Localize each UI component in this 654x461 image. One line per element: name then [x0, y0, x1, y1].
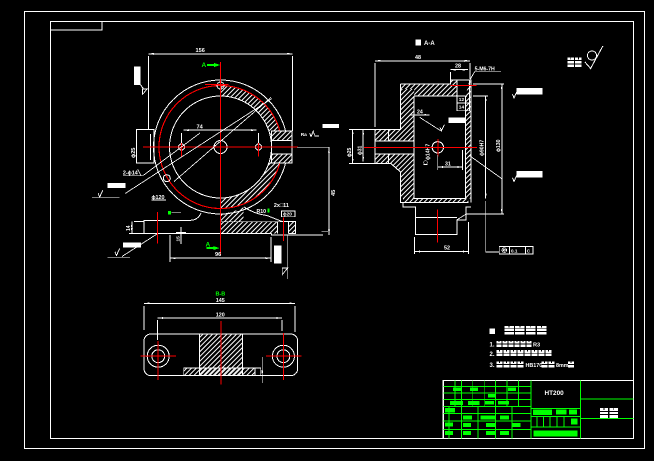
svg-text:1.: 1.	[490, 343, 495, 349]
svg-text:14: 14	[126, 225, 132, 231]
svg-text:12: 12	[459, 97, 465, 103]
svg-text:0.1: 0.1	[511, 249, 518, 254]
svg-text:ϕ130: ϕ130	[496, 139, 502, 152]
svg-text:156: 156	[196, 48, 205, 54]
svg-text:52: 52	[444, 245, 450, 251]
svg-text:45: 45	[331, 190, 337, 196]
svg-text:HT200: HT200	[545, 390, 565, 397]
svg-text:A: A	[202, 62, 207, 69]
svg-text:48: 48	[415, 55, 421, 61]
svg-text:ϕ90H7: ϕ90H7	[480, 140, 486, 156]
svg-text:120: 120	[216, 312, 225, 318]
svg-text:ϕ25: ϕ25	[131, 148, 137, 158]
svg-text:2x□11: 2x□11	[274, 203, 289, 209]
svg-text:2.: 2.	[490, 352, 495, 358]
svg-text:14: 14	[459, 105, 465, 111]
svg-text:145: 145	[216, 298, 225, 304]
svg-text:2-ϕ14╲: 2-ϕ14╲	[123, 169, 142, 176]
svg-text:HB170,: HB170,	[526, 363, 545, 369]
svg-text:15: 15	[176, 236, 182, 242]
svg-text:ϕ20: ϕ20	[283, 212, 292, 218]
svg-text:31: 31	[445, 161, 451, 167]
svg-text:28: 28	[455, 64, 461, 70]
svg-text:B-B: B-B	[216, 292, 226, 298]
svg-text:ϕ14H7: ϕ14H7	[426, 144, 432, 160]
svg-text:74: 74	[197, 124, 204, 130]
svg-text:ϕ31: ϕ31	[358, 145, 364, 155]
svg-text:Ra: Ra	[301, 132, 307, 138]
svg-text:R3: R3	[533, 343, 540, 349]
svg-text:3.: 3.	[490, 363, 495, 369]
svg-text:A-A: A-A	[424, 41, 435, 47]
svg-text:ϕ25: ϕ25	[347, 147, 353, 157]
svg-text:96: 96	[215, 252, 221, 258]
svg-text:R10: R10	[257, 209, 267, 215]
